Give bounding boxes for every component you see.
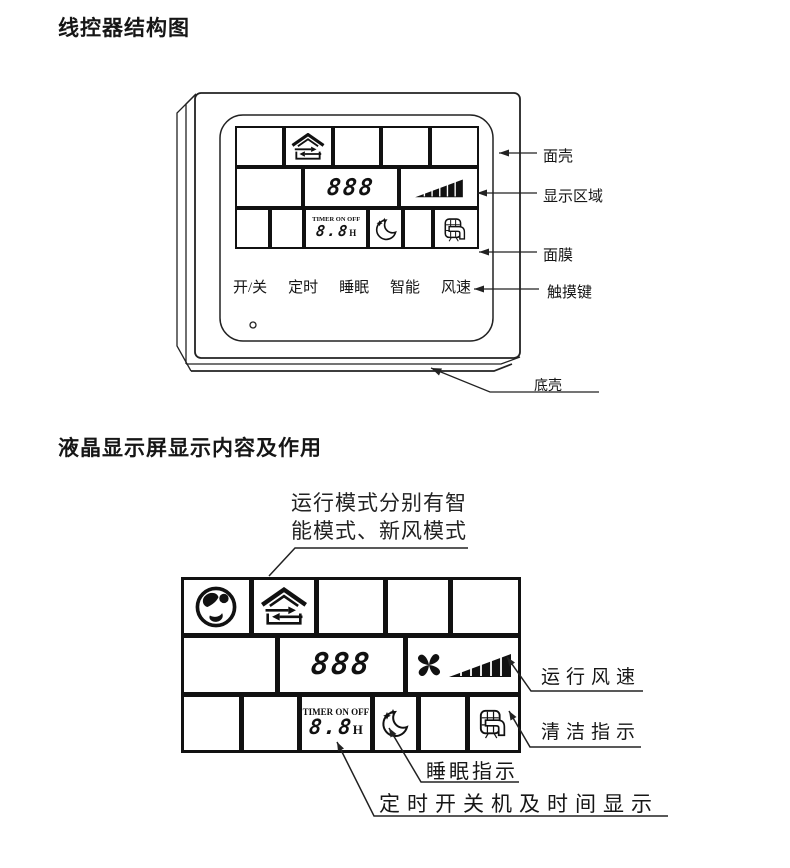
display-row-temp: 888 [237,169,477,206]
callout-touch-keys: 触摸键 [547,281,592,302]
callout-membrane: 面膜 [543,244,573,265]
callout-bottom-shell: 底壳 [534,375,562,395]
seven-segment-digits: 888 [326,175,376,201]
seven-segment-digits: 888 [310,647,374,682]
timer-unit: H [353,722,363,737]
lcd-cell-fan-speed [408,638,518,691]
display-cell-empty [237,210,268,247]
controller-display-grid: 888 TIMER ON OFF 8.8H [235,126,479,249]
lcd-cell-empty [184,697,239,750]
timer-value: 8.8H [316,224,356,240]
callout-display-area: 显示区域 [543,185,603,206]
sleep-moon-icon [374,217,398,241]
display-row-timer: TIMER ON OFF 8.8H [237,210,477,247]
mode-annotation: 运行模式分别有智 能模式、新风模式 [291,489,467,545]
lcd-cell-timer: TIMER ON OFF 8.8H [302,697,370,750]
lcd-row-temp: 888 [184,638,518,691]
lcd-cell-clean [470,697,518,750]
lcd-cell-fresh-air [254,580,314,633]
arrowhead [474,286,484,293]
timer-digits: 8.8 [308,717,354,738]
key-fan: 风速 [441,276,471,297]
lcd-cell-empty [388,580,448,633]
mode-annotation-line2: 能模式、新风模式 [291,517,467,545]
timer-digits: 8.8 [315,224,350,239]
lcd-display-grid: 888 [181,577,521,753]
indicator-dot [250,322,256,328]
leader-bottom-shell [431,368,599,392]
arrowhead [479,249,489,256]
display-cell-empty [272,210,303,247]
fan-speed-ramp-icon [448,652,512,678]
lcd-cell-smart-mode [184,580,249,633]
lcd-cell-empty [184,638,275,691]
callout-front-shell: 面壳 [543,145,573,166]
lcd-cell-sleep [375,697,416,750]
key-sleep: 睡眠 [339,276,369,297]
display-cell-fresh-air [286,128,331,165]
display-row-modes [237,128,477,165]
leader-mode-annotation [269,548,468,576]
lcd-row-timer: TIMER ON OFF 8.8H [184,697,518,750]
display-cell-fan-speed [401,169,477,206]
arrowhead [499,150,509,157]
section-title-lcd: 液晶显示屏显示内容及作用 [58,432,322,462]
lcd-cell-empty [244,697,298,750]
key-power: 开/关 [233,276,267,297]
key-smart: 智能 [390,276,420,297]
fan-speed-ramp-icon [411,178,467,198]
lcd-row-modes [184,580,518,633]
lcd-cell-empty [421,697,464,750]
section-title-structure: 线控器结构图 [58,12,190,42]
mode-annotation-line1: 运行模式分别有智 [291,489,467,517]
controller-bottom-shell-line2 [191,364,512,371]
display-cell-empty [237,128,282,165]
callout-timer-display: 定时开关机及时间显示 [379,788,659,818]
display-cell-empty [432,128,477,165]
display-cell-empty [335,128,380,165]
display-cell-sleep [370,210,401,247]
clean-filter-icon [478,707,510,739]
sleep-moon-icon [380,708,410,738]
controller-left-edge-outer [177,94,196,371]
lcd-cell-digits: 888 [280,638,403,691]
lcd-cell-empty [453,580,518,633]
timer-unit: H [349,228,356,238]
manual-page: 线控器结构图 液晶显示屏显示内容及作用 [0,0,790,868]
callout-fan-speed: 运行风速 [541,662,641,689]
display-cell-digits: 888 [305,169,397,206]
fresh-air-house-icon [290,133,326,161]
display-cell-empty [237,169,301,206]
clean-filter-icon [443,216,469,242]
display-cell-timer: TIMER ON OFF 8.8H [306,210,366,247]
display-cell-empty [405,210,431,247]
display-cell-clean [435,210,477,247]
arrowhead [431,368,442,376]
touch-keys-row: 开/关 定时 睡眠 智能 风速 [233,276,471,297]
fan-blades-icon [414,650,444,680]
fresh-air-house-icon [259,587,309,627]
controller-bottom-shell-line1 [186,357,520,364]
key-timer: 定时 [288,276,318,297]
globe-earth-icon [194,585,238,629]
callout-sleep: 睡眠指示 [426,755,518,784]
callout-clean: 清洁指示 [541,717,641,744]
controller-left-edge-inner [186,94,196,364]
display-cell-empty [383,128,428,165]
timer-value: 8.8H [309,717,363,738]
lcd-cell-empty [319,580,384,633]
